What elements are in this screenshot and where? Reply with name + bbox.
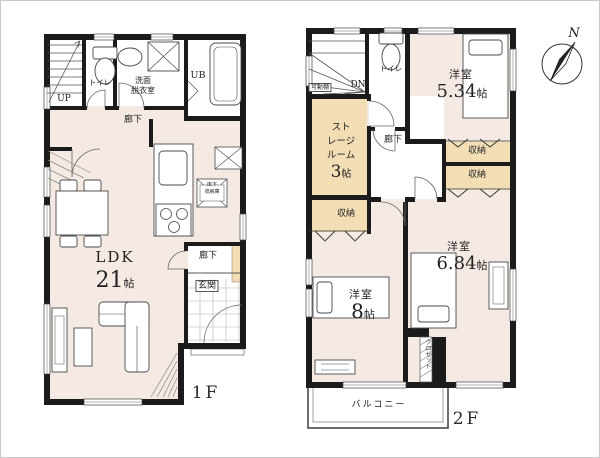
bathtub — [210, 43, 241, 105]
tv-board-1f — [52, 308, 67, 372]
porch-steps — [191, 349, 244, 355]
storage-room-label-2: レージ — [327, 137, 355, 147]
fridge-space — [215, 147, 242, 169]
desk-684 — [489, 262, 508, 309]
underfloor-label-1: 床下 — [207, 183, 217, 188]
sink-basin — [118, 48, 142, 66]
storage-room-label-1: スト — [331, 123, 350, 133]
ldk-size-label: 21帖 — [96, 269, 135, 292]
compass-icon — [542, 42, 582, 84]
underfloor-label-2: 収納庫 — [204, 190, 219, 195]
hallway-upper-label: 廊下 — [124, 116, 142, 125]
side-table — [74, 328, 92, 366]
ldk-label: LDK — [95, 250, 134, 266]
compass-north-label: N — [568, 27, 579, 41]
balcony-label: バルコニー — [352, 401, 407, 410]
toilet-2f-label: トイレ — [380, 65, 403, 73]
tv-board-2f — [315, 360, 355, 374]
stove — [156, 204, 191, 236]
kitchen-sink — [159, 151, 187, 185]
closet-strip-label: クロゼット — [421, 339, 432, 381]
closet-a-label: 収納 — [468, 147, 486, 156]
washroom-label-1: 洗面 — [135, 77, 151, 85]
bedroom-534-size: 5.34帖 — [436, 83, 487, 102]
stairs-up-label: UP — [57, 95, 71, 104]
kitchen-counter — [154, 144, 193, 236]
closet-c-label: 収納 — [337, 210, 355, 219]
washroom-label-2: 脱衣室 — [131, 87, 155, 95]
floorplan-image: UP トイレ 洗面 脱衣室 UB 廊下 LDK 21帖 床下 収納庫 廊下 玄関… — [0, 0, 600, 458]
hallway-lower-label: 廊下 — [199, 252, 217, 261]
storage-room-size-label: 3帖 — [331, 164, 352, 182]
hallway-2f-label: 廊下 — [384, 136, 402, 145]
stairs-down-label: DN — [350, 81, 365, 90]
floor-1f-label: 1F — [192, 385, 221, 403]
toilet-1f-label: トイレ — [89, 79, 112, 87]
pillow — [317, 282, 332, 313]
closet-b-label: 収納 — [468, 171, 486, 180]
pillow — [418, 306, 449, 322]
bedroom-684-size: 6.84帖 — [436, 255, 487, 274]
dining-table — [56, 191, 108, 235]
pillow — [469, 40, 502, 55]
floorplan-drawing — [1, 1, 600, 458]
bedroom-534-label: 洋室 — [449, 69, 473, 81]
bedroom-8-size: 8帖 — [351, 301, 375, 322]
storage-room-label-3: ルーム — [327, 151, 355, 161]
entrance-label: 玄関 — [195, 280, 218, 292]
movable-shelf-label: 可動棚 — [308, 83, 331, 92]
floor-2f-label: 2F — [453, 411, 482, 429]
bedroom-684-label: 洋室 — [447, 241, 471, 253]
unit-bath-label: UB — [191, 71, 206, 81]
